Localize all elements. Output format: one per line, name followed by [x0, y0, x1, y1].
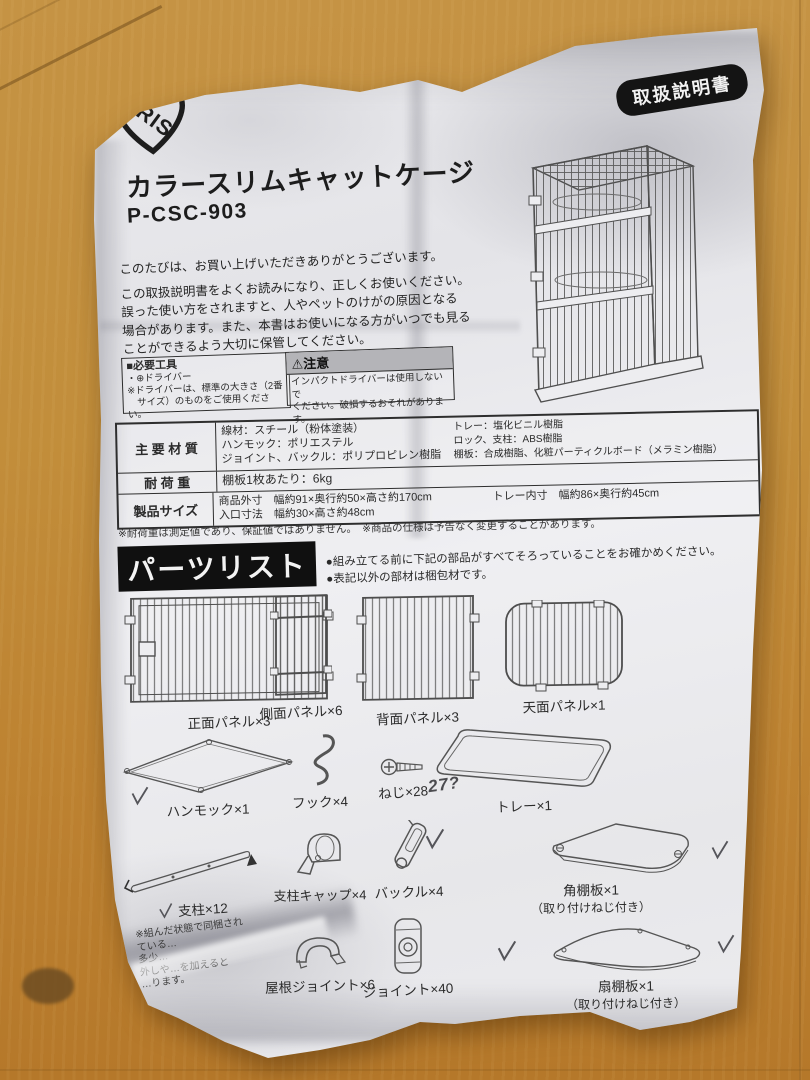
spec-label: 製品サイズ [118, 493, 214, 529]
part-back-panel: 背面パネル×3 [350, 594, 485, 727]
handwritten-checkmark-icon [424, 828, 446, 850]
pillar-icon [123, 840, 263, 896]
part-hook: フック×4 [284, 732, 356, 811]
handwritten-checkmark-icon [130, 786, 150, 806]
product-title: カラースリムキャットケージ [125, 152, 476, 205]
part-label-sub: （取り付けねじ付き） [500, 897, 682, 917]
corner-shelf-icon [542, 818, 702, 876]
manual-paper-wrap: 取扱説明書 IRIS カラースリムキャットケージ P-CSC-903 [0, 0, 810, 1080]
spec-table: 主 要 材 質 線材：スチール（粉体塗装） ハンモック：ポリエステル ジョイント… [115, 409, 761, 530]
handwritten-checkmark-icon [710, 840, 730, 860]
fan-shelf-icon [544, 922, 708, 972]
back-panel-icon [355, 594, 481, 704]
top-panel-icon [502, 600, 626, 692]
model-number: P-CSC-903 [127, 199, 249, 228]
parts-list-title: パーツリスト [127, 544, 308, 589]
heart-logo-icon: IRIS [109, 77, 192, 162]
handwritten-checkmark-icon [496, 940, 518, 962]
part-tray: トレー×1 [428, 726, 620, 815]
pillar-cap-icon [294, 828, 346, 882]
part-label: トレー×1 [428, 792, 621, 819]
parts-list-header: パーツリスト [117, 541, 316, 592]
handwritten-checkmark-icon [716, 934, 736, 954]
required-tools-box: ■必要工具 ・⊕ドライバー ※ドライバーは、標準の大きさ（2番 サイズ）のものを… [121, 352, 291, 414]
cage-illustration [505, 106, 723, 414]
warning-triangle-icon: ⚠ [291, 356, 303, 371]
part-label: ジョイント×40 [358, 976, 459, 1001]
part-top-panel: 天面パネル×1 [498, 600, 630, 715]
part-label: 側面パネル×6 [250, 698, 353, 723]
spec-label: 耐 荷 重 [118, 472, 217, 494]
part-hammock: ハンモック×1 [112, 734, 304, 819]
tools-line: サイズ）のものをご使用ください。 [127, 392, 286, 421]
tray-icon [430, 726, 618, 792]
part-label-sub: （取り付けねじ付き） [530, 993, 722, 1013]
parts-list-bullets: ●組み立てる前に下記の部品がすべてそろっていることをお確かめください。 ●表記以… [326, 543, 723, 588]
screw-icon [380, 756, 426, 778]
part-label: 支柱×12 [178, 901, 229, 919]
joint-icon [389, 916, 427, 976]
part-label: 天面パネル×1 [498, 693, 631, 718]
part-joint: ジョイント×40 [358, 916, 458, 999]
part-label: 支柱キャップ×4 [272, 884, 368, 905]
handwritten-checkmark-icon [158, 902, 175, 919]
manual-paper: 取扱説明書 IRIS カラースリムキャットケージ P-CSC-903 [0, 0, 810, 1080]
badge-label: 取扱説明書 [631, 69, 734, 110]
spec-value: 棚板1枚あたり：6kg [222, 472, 332, 488]
photo-of-manual-on-wood-floor: 取扱説明書 IRIS カラースリムキャットケージ P-CSC-903 [0, 0, 810, 1080]
part-pillar: 支柱×12 [118, 840, 268, 919]
part-label: バックル×4 [368, 880, 451, 903]
side-panel-icon [270, 594, 332, 698]
spec-label: 主 要 材 質 [117, 423, 217, 473]
part-side-panel: 側面パネル×6 [250, 594, 352, 721]
intro-text: このたびは、お買い上げいただきありがとうございます。 この取扱説明書をよくお読み… [119, 243, 533, 359]
part-fan-shelf: 扇棚板×1 （取り付けねじ付き） [530, 922, 722, 1012]
part-label: フック×4 [284, 790, 357, 813]
part-pillar-cap: 支柱キャップ×4 [272, 828, 368, 904]
iris-heart-logo: IRIS [109, 77, 192, 162]
part-corner-shelf: 角棚板×1 （取り付けねじ付き） [500, 818, 718, 916]
roof-joint-icon [291, 930, 349, 972]
spec-value: トレー内寸 幅約86×奥行約45cm [492, 484, 754, 503]
caution-title: 注意 [303, 355, 330, 371]
caution-box: ⚠注意 インパクトドライバーは使用しないで ください。破損するおそれがあります。 [285, 346, 455, 406]
hook-icon [301, 732, 339, 788]
